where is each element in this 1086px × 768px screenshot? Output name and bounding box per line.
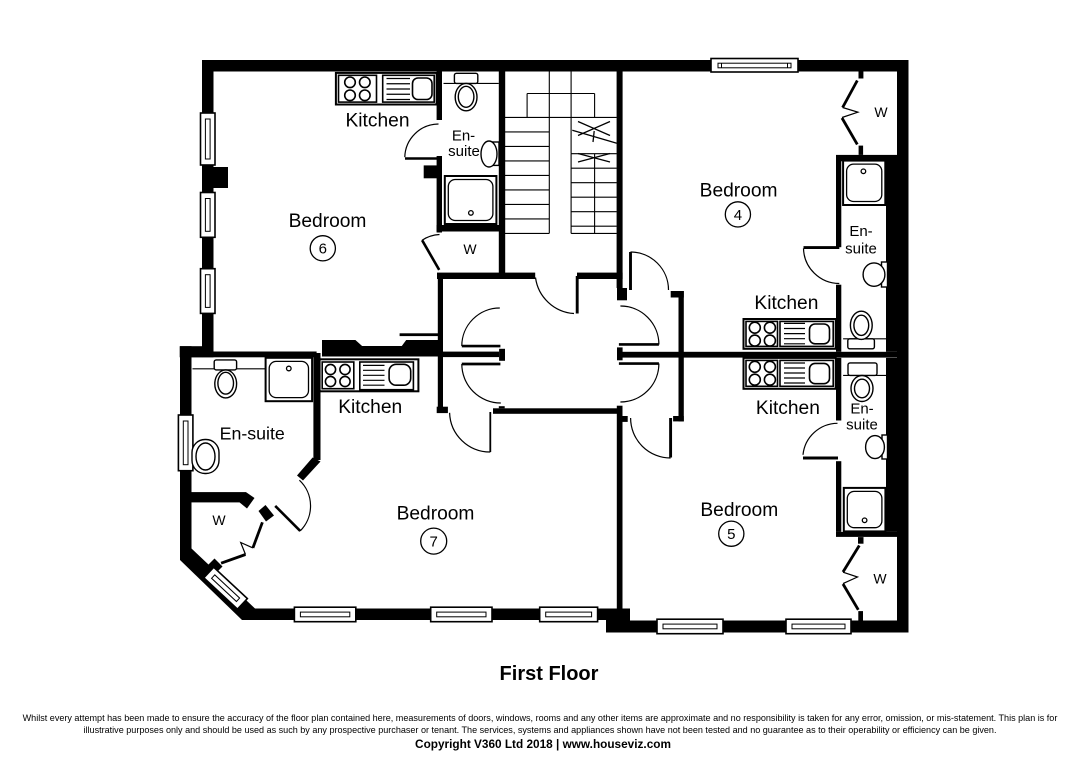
svg-text:suite: suite [448, 143, 480, 160]
svg-text:First Floor: First Floor [500, 663, 599, 685]
svg-text:Copyright V360 Ltd 2018 | www.: Copyright V360 Ltd 2018 | www.houseviz.c… [415, 737, 671, 751]
svg-text:Kitchen: Kitchen [754, 293, 818, 314]
svg-text:Kitchen: Kitchen [346, 110, 410, 131]
svg-text:W: W [874, 104, 888, 120]
svg-text:Kitchen: Kitchen [756, 398, 820, 419]
svg-text:W: W [873, 571, 887, 587]
svg-text:7: 7 [430, 534, 438, 551]
svg-text:W: W [212, 512, 226, 528]
svg-text:En-suite: En-suite [220, 424, 285, 444]
svg-text:Whilst every attempt has been: Whilst every attempt has been made to en… [23, 713, 1058, 723]
svg-text:4: 4 [734, 207, 742, 224]
svg-text:En-: En- [452, 128, 475, 145]
svg-text:suite: suite [846, 417, 878, 434]
svg-text:Bedroom: Bedroom [700, 500, 778, 521]
svg-text:En-: En- [850, 401, 873, 418]
svg-text:5: 5 [727, 526, 735, 543]
svg-text:En-: En- [849, 223, 872, 240]
svg-text:W: W [463, 241, 477, 257]
svg-text:suite: suite [845, 241, 877, 258]
svg-text:illustrative purposes only and: illustrative purposes only and should be… [84, 725, 997, 735]
svg-text:Bedroom: Bedroom [700, 180, 778, 201]
svg-text:Kitchen: Kitchen [338, 397, 402, 418]
svg-text:Bedroom: Bedroom [397, 504, 475, 525]
svg-text:Bedroom: Bedroom [289, 211, 367, 232]
svg-text:6: 6 [319, 241, 327, 258]
